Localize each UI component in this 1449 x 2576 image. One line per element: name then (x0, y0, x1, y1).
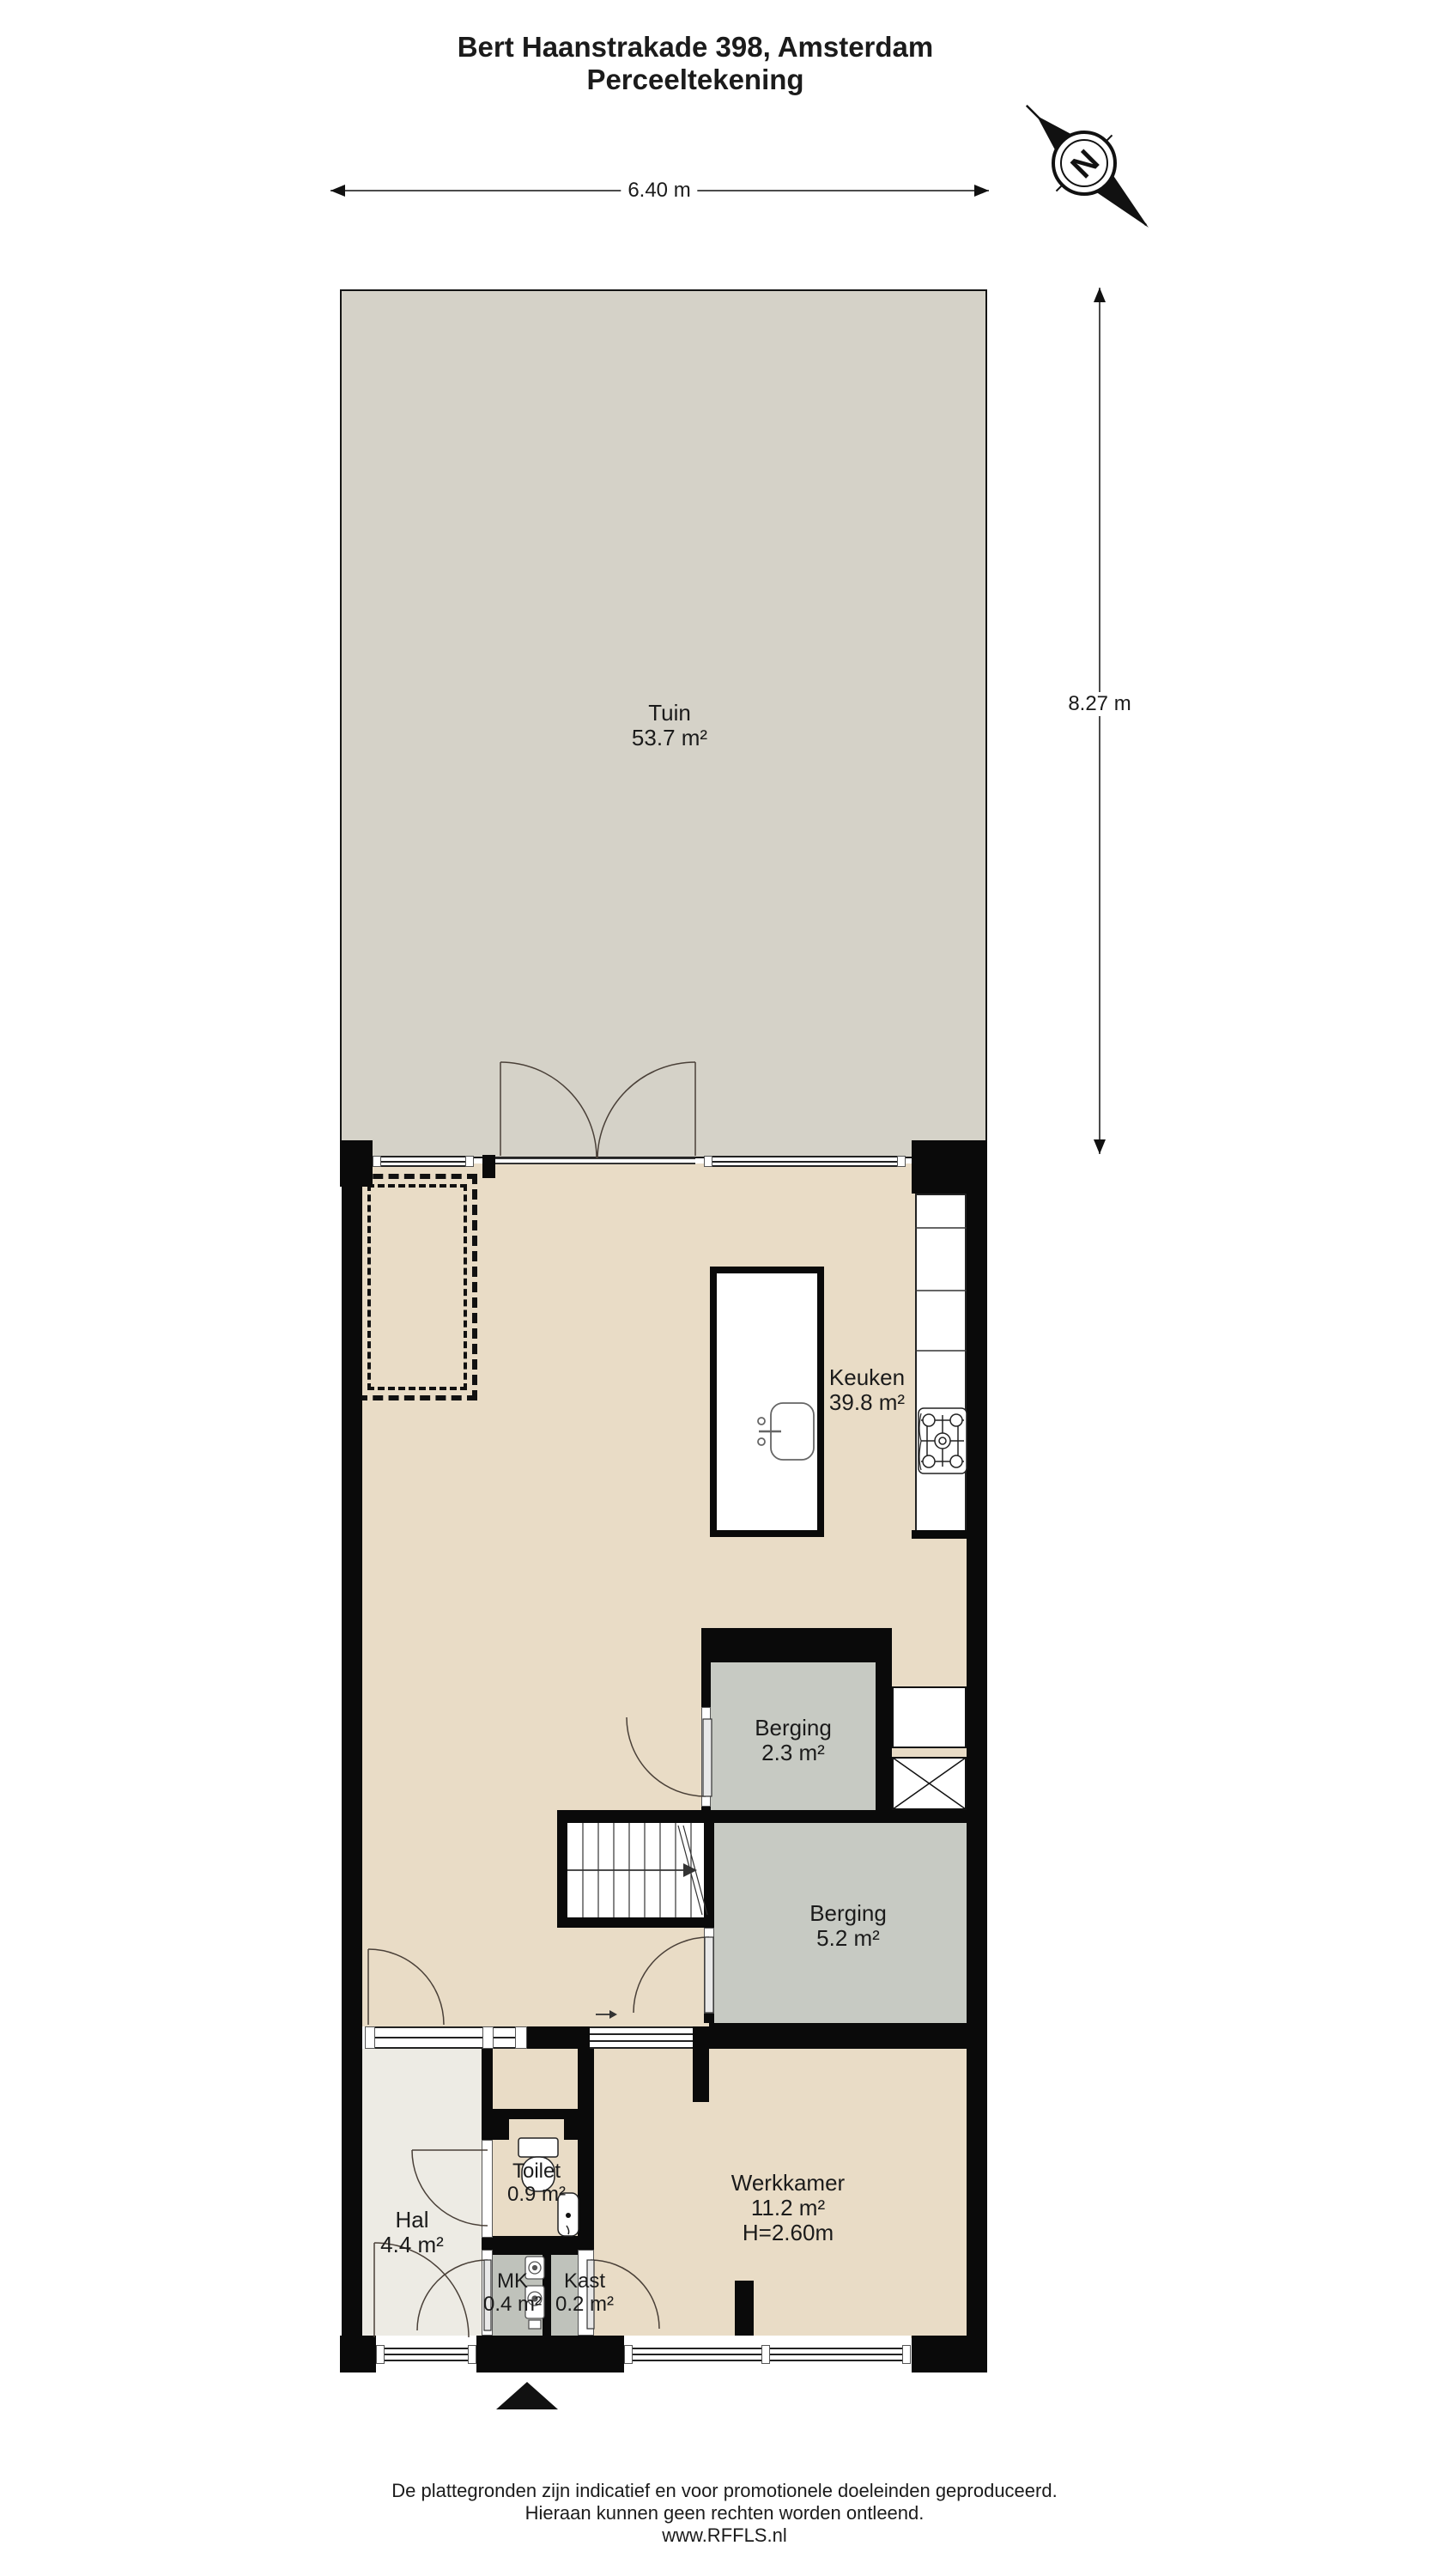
storage-small-right-wall (876, 1662, 892, 1810)
kitchen-window-jamb-2 (465, 1156, 474, 1167)
room-name: Tuin (632, 701, 707, 726)
exterior-wall-bottom-mid (476, 2336, 624, 2372)
kitchen-window-band-left (373, 1156, 474, 1167)
room-label-toilet: Toilet 0.9 m² (507, 2160, 566, 2206)
toilet-bottom-wall (482, 2236, 588, 2255)
compass-icon: N (998, 77, 1176, 255)
living-south-wall-left (527, 2026, 590, 2049)
page-title-address: Bert Haanstrakade 398, Amsterdam (0, 31, 1391, 64)
shaft-x-box (892, 1757, 967, 1810)
toilet-door-opening (482, 2140, 493, 2238)
toilet-niche (509, 2119, 564, 2140)
kitchen-island (710, 1267, 824, 1537)
storage-large-bottom-wall (709, 2023, 987, 2049)
room-label-tuin: Tuin 53.7 m² (632, 701, 707, 750)
kitchen-window-jamb-1 (373, 1156, 381, 1167)
mk-kast-wall (543, 2255, 551, 2336)
floorplan-page: Bert Haanstrakade 398, Amsterdam Perceel… (0, 0, 1449, 2576)
kitchen-window-jamb-4 (897, 1156, 906, 1167)
hall-floor (362, 2049, 482, 2338)
front-door-jamb-right (468, 2345, 476, 2364)
storage-large-door-opening (704, 1928, 714, 2014)
wall-block-top-left (340, 1140, 373, 1187)
room-area: 0.2 m² (555, 2293, 614, 2316)
hall-band-jamb-3 (515, 2026, 527, 2049)
room-name: Kast (555, 2269, 614, 2293)
footer-disclaimer-line1: De plattegronden zijn indicatief en voor… (0, 2480, 1449, 2502)
room-name: Toilet (507, 2160, 566, 2183)
werkkamer-wall-stub (735, 2281, 754, 2336)
compass-north-label: N (1064, 143, 1106, 185)
built-in-closet (892, 1686, 967, 1748)
room-area: 0.9 m² (507, 2183, 566, 2206)
room-area: 5.2 m² (809, 1926, 887, 1951)
room-area: 4.4 m² (380, 2233, 444, 2257)
room-label-keuken: Keuken 39.8 m² (829, 1365, 905, 1415)
hall-band-jamb-1 (365, 2026, 375, 2049)
room-area: 53.7 m² (632, 726, 707, 750)
room-name: Hal (380, 2208, 444, 2233)
room-ceiling-height: H=2.60m (731, 2221, 845, 2245)
storage-small-door-opening (701, 1707, 711, 1807)
room-name: Berging (755, 1716, 832, 1741)
room-label-werkkamer: Werkkamer 11.2 m² H=2.60m (731, 2171, 845, 2245)
dimension-arrow-down (1094, 1139, 1106, 1154)
front-door-threshold (385, 2348, 468, 2361)
footer-website: www.RFFLS.nl (0, 2524, 1449, 2547)
wall-block-top-right (912, 1140, 987, 1194)
wall-block-bottom-right (912, 2336, 987, 2372)
width-dimension-label: 6.40 m (621, 179, 697, 203)
toilet-lobby-floor (493, 2049, 578, 2109)
room-name: MK (483, 2269, 542, 2293)
hall-band-jamb-2 (482, 2026, 494, 2049)
room-area: 39.8 m² (829, 1390, 905, 1415)
wall-block-bottom-left (340, 2336, 376, 2372)
storage-small-top-wall (701, 1628, 892, 1662)
exterior-wall-left (342, 1140, 362, 2372)
stairs-floor (567, 1823, 704, 1917)
room-label-berging-klein: Berging 2.3 m² (755, 1716, 832, 1765)
room-label-kast: Kast 0.2 m² (555, 2269, 614, 2316)
kitchen-counter (915, 1194, 967, 1532)
dashed-overhang-inner-outline (367, 1184, 467, 1390)
entrance-arrow-icon (496, 2382, 558, 2409)
dimension-arrow-left (330, 185, 345, 197)
page-title-subtitle: Perceeltekening (0, 64, 1391, 96)
room-area: 2.3 m² (755, 1741, 832, 1765)
wall-post-garden-door (482, 1155, 495, 1178)
room-area: 0.4 m² (483, 2293, 542, 2316)
room-name: Werkkamer (731, 2171, 845, 2196)
footer-disclaimer-line2: Hieraan kunnen geen rechten worden ontle… (0, 2502, 1449, 2524)
werkkamer-window-jamb-right (902, 2345, 911, 2364)
room-label-berging-groot: Berging 5.2 m² (809, 1901, 887, 1951)
step-post-wall (693, 2026, 709, 2102)
hall-glass-wall-band (365, 2026, 527, 2049)
garden-door-threshold (495, 1157, 695, 1164)
room-label-mk: MK 0.4 m² (483, 2269, 542, 2316)
room-label-hal: Hal 4.4 m² (380, 2208, 444, 2257)
kitchen-window-jamb-3 (704, 1156, 712, 1167)
dimension-arrow-right (974, 185, 989, 197)
room-name: Berging (809, 1901, 887, 1926)
dashed-overhang-outline (357, 1174, 477, 1400)
room-name: Keuken (829, 1365, 905, 1390)
stairs-left-wall (557, 1823, 567, 1928)
kitchen-window-band-right (704, 1156, 906, 1167)
kitchen-counter-end-wall (912, 1530, 967, 1539)
room-area: 11.2 m² (731, 2196, 845, 2221)
werkkamer-window-jamb-mid (761, 2345, 770, 2364)
werkkamer-step-opening (590, 2026, 693, 2049)
exterior-wall-right (967, 1140, 987, 2372)
dimension-arrow-up (1094, 288, 1106, 302)
front-door-jamb-left (376, 2345, 385, 2364)
werkkamer-window-jamb-left (624, 2345, 633, 2364)
storage-stairs-top-wall (557, 1810, 987, 1823)
height-dimension-label: 8.27 m (1061, 692, 1137, 716)
stairs-bottom-wall (557, 1917, 714, 1928)
